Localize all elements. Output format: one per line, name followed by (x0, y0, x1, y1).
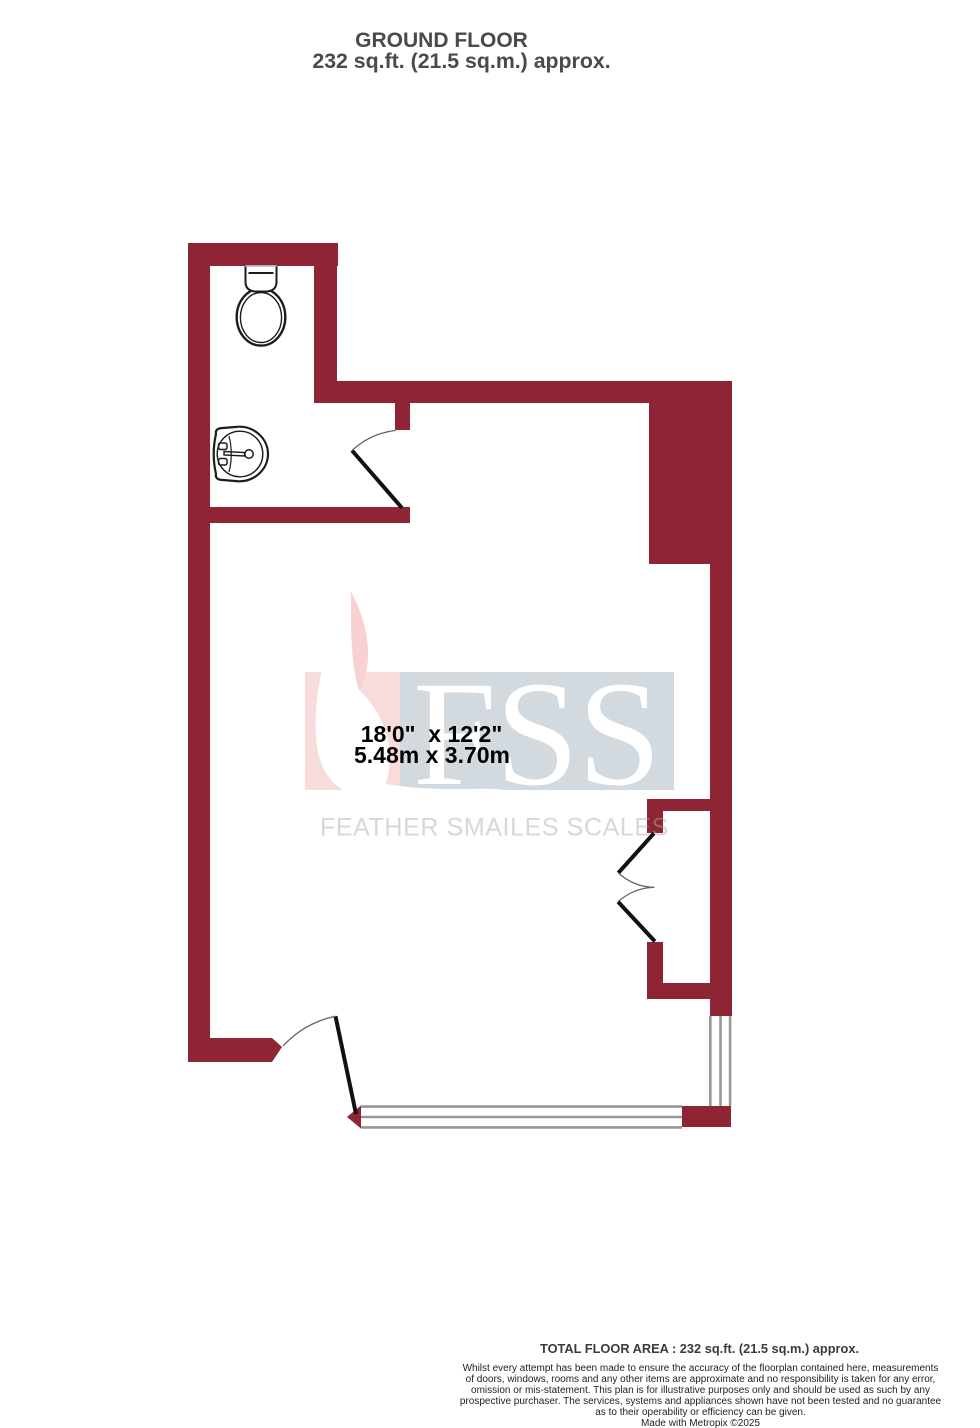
svg-text:FEATHER SMAILES SCALES: FEATHER SMAILES SCALES (320, 814, 669, 842)
